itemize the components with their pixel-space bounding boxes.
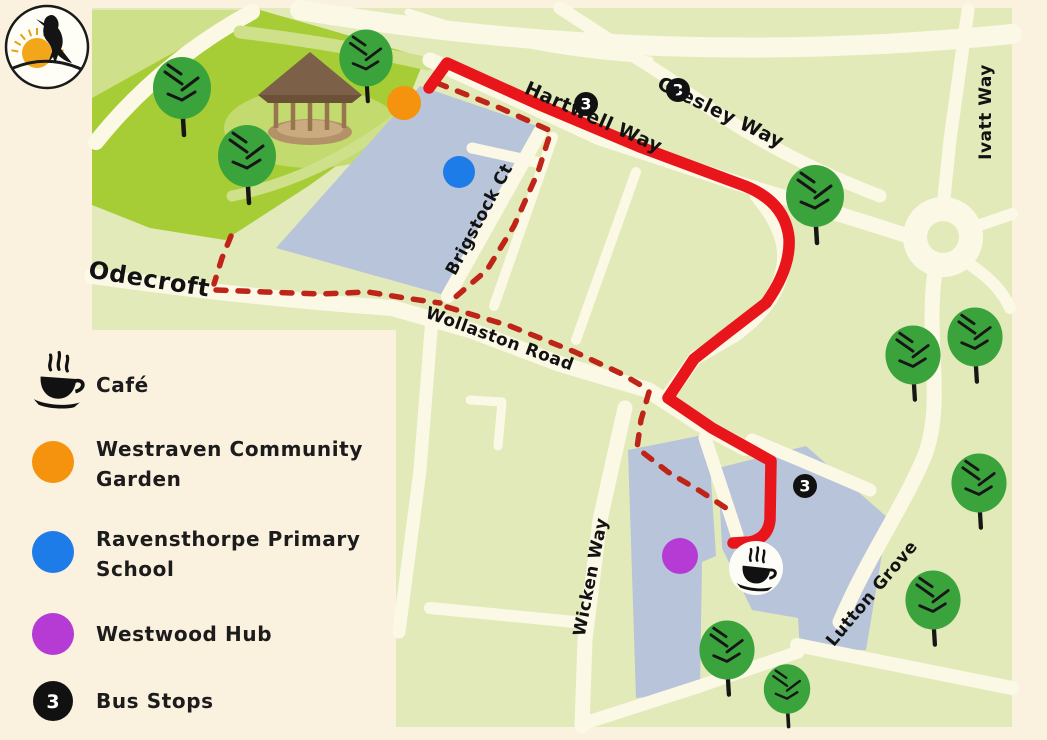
legend-label-westwood-hub: Westwood Hub bbox=[96, 622, 272, 646]
legend-label-school-line1: Ravensthorpe Primary bbox=[96, 527, 361, 551]
bus-stop-legend-number: 3 bbox=[46, 691, 59, 713]
school-swatch bbox=[32, 531, 74, 573]
legend-label-community-garden-line2: Garden bbox=[96, 467, 182, 491]
roundabout-island bbox=[927, 221, 959, 253]
top-margin bbox=[92, 0, 1012, 8]
hub-swatch bbox=[32, 613, 74, 655]
route-map-flyer: 3 3 3 Hartwell Way Gresley Way Ivatt Way… bbox=[0, 0, 1047, 740]
bottom-margin bbox=[92, 727, 1012, 740]
street-label-ivatt-way: Ivatt Way bbox=[976, 64, 996, 160]
cafe-map-marker bbox=[729, 541, 783, 595]
legend-label-school-line2: School bbox=[96, 557, 174, 581]
hub-marker bbox=[662, 538, 698, 574]
raven-and-sun-logo bbox=[6, 6, 88, 88]
legend-label-bus-stops: Bus Stops bbox=[96, 689, 214, 713]
bus-stop-badge: 3 bbox=[793, 474, 817, 498]
school-marker bbox=[443, 156, 475, 188]
legend-label-community-garden-line1: Westraven Community bbox=[96, 437, 363, 461]
gazebo-roof-edge bbox=[258, 95, 362, 103]
community-garden-marker bbox=[387, 86, 421, 120]
right-margin bbox=[1012, 0, 1047, 740]
bus-stop-number: 3 bbox=[799, 477, 810, 496]
legend-label-cafe: Café bbox=[96, 373, 149, 397]
community-garden-swatch bbox=[32, 441, 74, 483]
